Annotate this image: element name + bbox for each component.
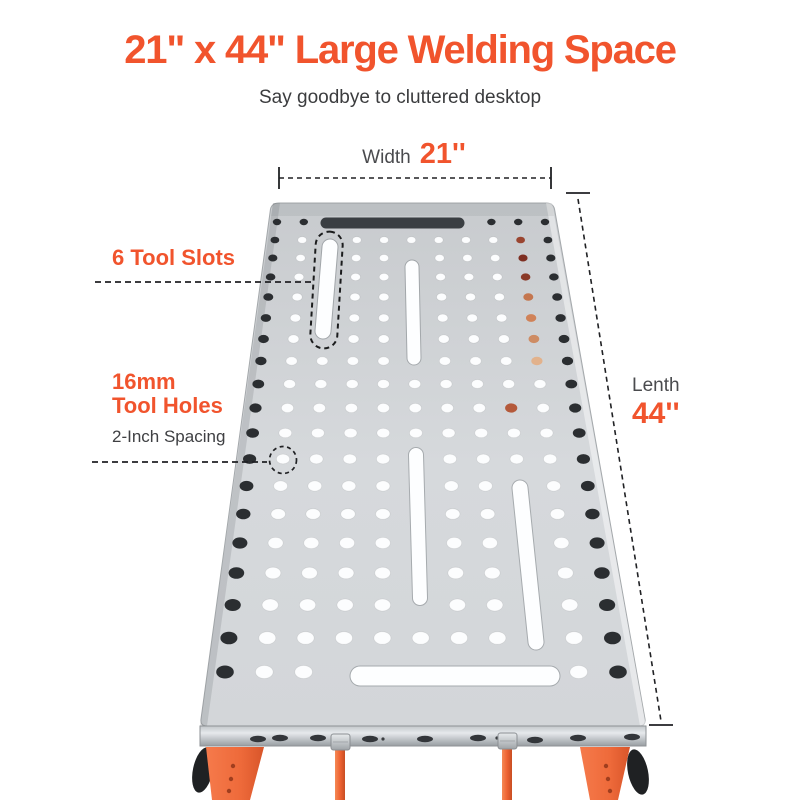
width-dimension-label: Width 21'' [277,138,551,171]
length-word: Lenth [632,376,680,396]
product-banner: 21" x 44" Large Welding Space Say goodby… [0,0,800,800]
tool-holes-callout: 16mm Tool Holes [112,370,223,418]
front-edge-band [200,726,646,746]
length-dimension-label: Lenth 44'' [632,376,680,429]
tool-holes-subtext: 2-Inch Spacing [112,427,225,447]
width-value: 21'' [420,138,466,171]
length-value: 44'' [632,398,680,430]
width-word: Width [362,147,411,169]
tool-holes-line1: 16mm [112,370,223,394]
tool-holes-line2: Tool Holes [112,394,223,418]
tool-slots-callout: 6 Tool Slots [112,246,235,270]
